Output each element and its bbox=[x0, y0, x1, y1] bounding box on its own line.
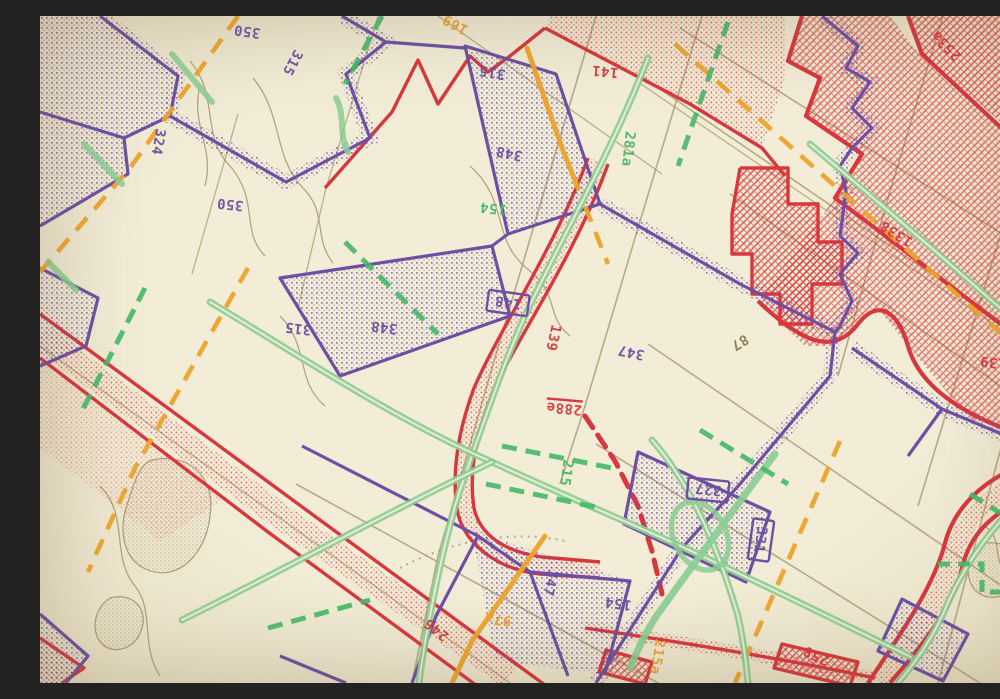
district-label: 324 bbox=[148, 127, 168, 156]
district-label: 215 bbox=[556, 458, 576, 487]
district-label: 148 bbox=[494, 292, 523, 312]
district-label: 315 bbox=[279, 47, 306, 78]
district-label: 141 bbox=[591, 62, 619, 81]
district-label: 350 bbox=[233, 21, 262, 41]
district-label: 169 bbox=[440, 16, 471, 37]
lake-shape bbox=[95, 597, 143, 650]
district-label: 347 bbox=[616, 341, 646, 362]
zoning-map-canvas: 350315324350169315141253a348154281a31534… bbox=[40, 16, 1000, 683]
district-label: 139 bbox=[979, 353, 1000, 372]
district-label: 139 bbox=[542, 323, 563, 353]
purple-district-layer bbox=[40, 16, 1000, 683]
district-label: 327 bbox=[694, 480, 722, 499]
district-label: 348 bbox=[370, 317, 399, 336]
district-label: 154 bbox=[479, 199, 507, 218]
district-label: 288e bbox=[546, 398, 583, 417]
district-label: 87 bbox=[728, 331, 752, 354]
district-label: 281a bbox=[618, 130, 638, 167]
zoning-map-photo: 350315324350169315141253a348154281a31534… bbox=[40, 16, 1000, 683]
district-label: 154 bbox=[604, 593, 633, 613]
district-label: 350 bbox=[216, 195, 244, 214]
district-label: 315 bbox=[284, 318, 313, 337]
